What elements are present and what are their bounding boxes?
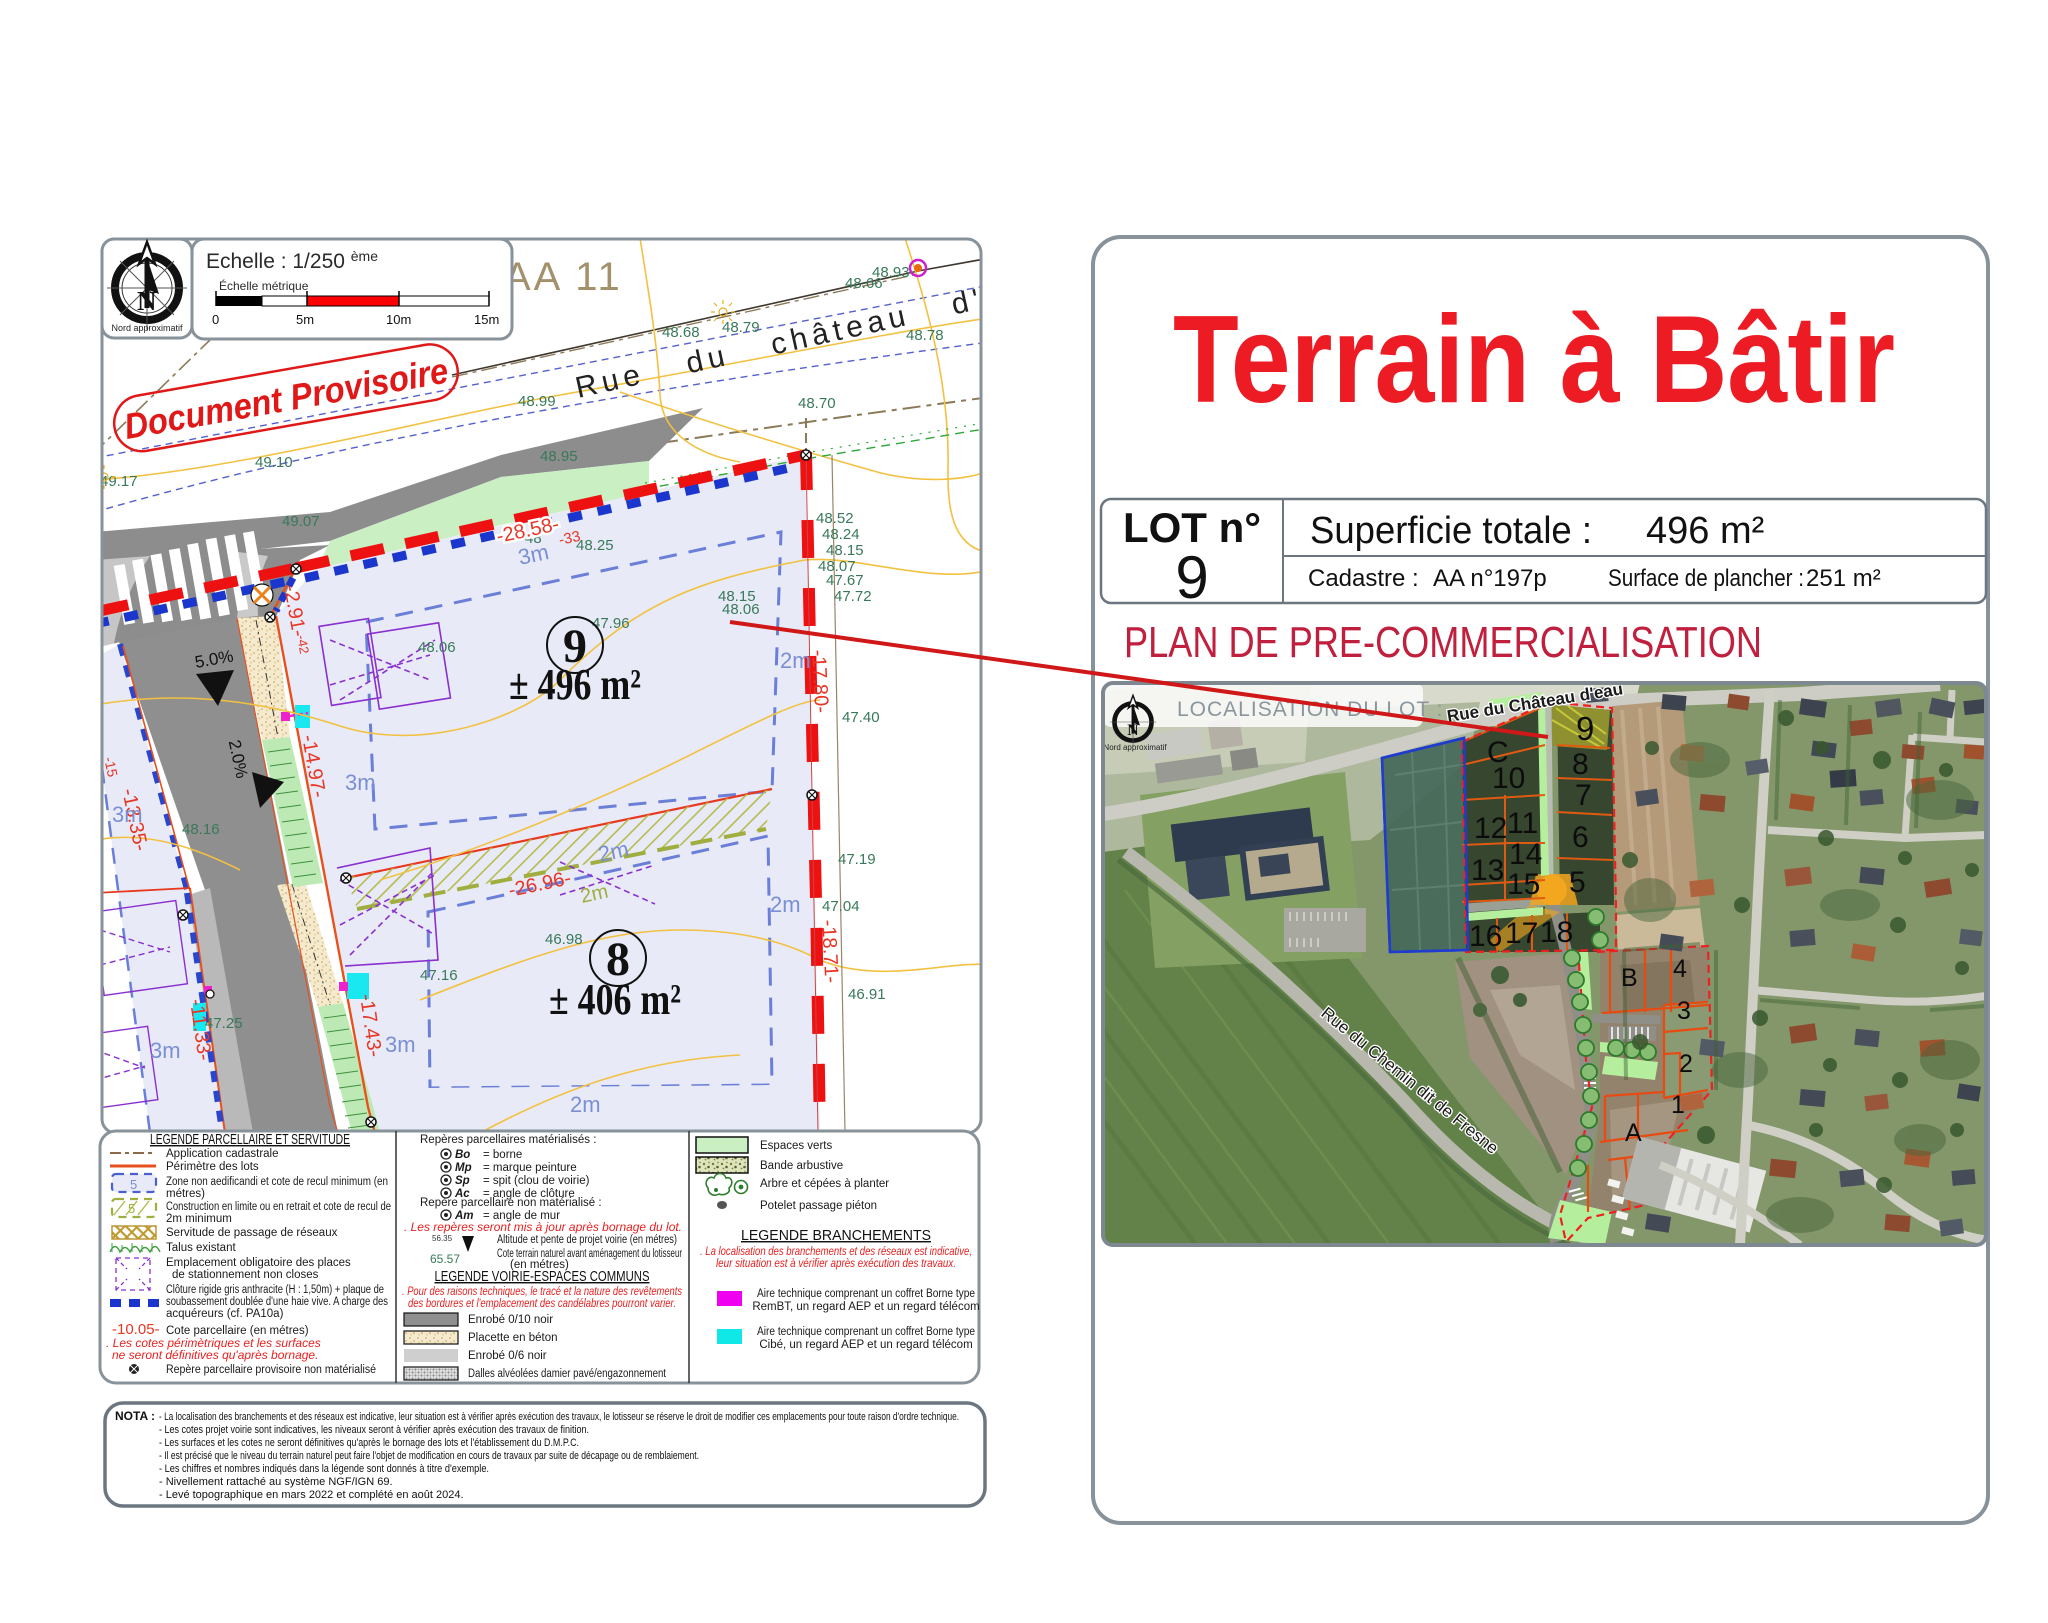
svg-text:47.72: 47.72 [834,588,872,605]
svg-text:10: 10 [1492,762,1525,795]
svg-text:2m: 2m [570,1092,601,1117]
svg-text:Repère parcellaire non matéria: Repère parcellaire non matérialisé : [420,1197,602,1209]
svg-text:Bande arbustive: Bande arbustive [760,1160,843,1172]
svg-text:Potelet passage piéton: Potelet passage piéton [760,1200,877,1212]
svg-text:46.91: 46.91 [848,986,886,1003]
svg-text:3m: 3m [385,1032,416,1057]
svg-text:- Nivellement rattaché au syst: - Nivellement rattaché au système NGF/IG… [159,1476,393,1488]
svg-text:7: 7 [1575,779,1592,812]
svg-text:Sp: Sp [455,1175,470,1187]
svg-text:3m: 3m [345,770,376,795]
svg-text:± 496 m²: ± 496 m² [509,660,641,709]
svg-text:Application cadastrale: Application cadastrale [166,1148,279,1160]
svg-text:- Il est précisé que le niveau: - Il est précisé que le niveau du terrai… [159,1450,699,1462]
svg-text:Terrain à Bâtir: Terrain à Bâtir [1173,291,1895,429]
svg-text:des bordures et l'emplacement: des bordures et l'emplacement des candél… [408,1296,676,1310]
svg-text:48.06: 48.06 [418,639,456,656]
svg-text:2m minimum: 2m minimum [166,1213,232,1225]
svg-text:14: 14 [1509,838,1542,871]
svg-text:49.17: 49.17 [100,473,138,490]
svg-text:Talus existant: Talus existant [166,1242,236,1254]
svg-text:2: 2 [1679,1050,1693,1078]
svg-text:métres): métres) [166,1188,205,1200]
svg-text:48.99: 48.99 [518,393,556,410]
svg-text:48.25: 48.25 [576,537,614,554]
svg-text:leur situation est à vérifier: leur situation est à vérifier après exéc… [716,1256,956,1270]
svg-text:Construction en limite ou en r: Construction en limite ou en retrait et … [166,1201,391,1213]
svg-text:± 406 m²: ± 406 m² [549,975,681,1024]
svg-text:-17.80-: -17.80- [807,649,832,713]
svg-text:2m: 2m [780,648,811,673]
svg-text:65.57: 65.57 [430,1252,460,1266]
svg-text:251 m²: 251 m² [1806,565,1881,592]
svg-text:Servitude de passage de réseau: Servitude de passage de réseaux [166,1227,338,1239]
svg-text:. Les repères seront mis à jou: . Les repères seront mis à jour après bo… [404,1220,682,1234]
svg-text:Repères parcellaires matériali: Repères parcellaires matérialisés : [420,1134,596,1146]
svg-text:9: 9 [1576,710,1594,747]
svg-text:48.06: 48.06 [722,601,760,618]
svg-text:PLAN DE PRE-COMMERCIALISATION: PLAN DE PRE-COMMERCIALISATION [1124,618,1762,667]
svg-text:= marque peinture: = marque peinture [483,1162,577,1174]
svg-text:8: 8 [1572,748,1589,781]
svg-text:- Levé topographique en mars 2: - Levé topographique en mars 2022 et com… [159,1489,464,1501]
svg-text:acquéreurs (cf. PA10a): acquéreurs (cf. PA10a) [166,1308,284,1320]
svg-text:49.07: 49.07 [282,513,320,530]
svg-text:496 m²: 496 m² [1646,510,1764,552]
svg-text:48.79: 48.79 [722,319,760,336]
svg-text:AA 11: AA 11 [504,255,623,299]
svg-text:15m: 15m [474,312,499,327]
svg-text:NOTA :: NOTA : [115,1409,155,1423]
svg-text:Placette en béton: Placette en béton [468,1332,558,1344]
svg-text:48.68: 48.68 [662,324,700,341]
svg-text:18: 18 [1540,916,1573,949]
svg-text:B: B [1621,964,1638,992]
svg-text:3m: 3m [150,1038,181,1063]
svg-text:N: N [137,286,157,316]
svg-text:9: 9 [1175,544,1208,611]
svg-text:Nord approximatif: Nord approximatif [111,323,183,333]
svg-text:- La localisation des branchem: - La localisation des branchements et de… [159,1411,959,1423]
svg-text:Emplacement obligatoire des pl: Emplacement obligatoire des places [166,1257,351,1269]
svg-text:17: 17 [1505,917,1538,950]
svg-text:47.16: 47.16 [420,967,458,984]
svg-text:Superficie totale :: Superficie totale : [1310,510,1592,552]
svg-text:Altitude et pente de projet vo: Altitude et pente de projet voirie (en m… [497,1234,677,1246]
svg-text:2m: 2m [770,892,801,917]
svg-text:Enrobé 0/6 noir: Enrobé 0/6 noir [468,1350,547,1362]
svg-text:5m: 5m [296,312,314,327]
svg-text:48.52: 48.52 [816,510,854,527]
svg-text:3m: 3m [112,802,143,827]
svg-text:48.95: 48.95 [540,448,578,465]
svg-text:- Les cotes projet voirie sont: - Les cotes projet voirie sont indicativ… [159,1424,589,1436]
svg-text:4: 4 [1673,955,1687,983]
svg-text:- Les surfaces et les cotes ne: - Les surfaces et les cotes ne seront dé… [159,1437,579,1449]
svg-text:0: 0 [212,312,219,327]
svg-text:LEGENDE BRANCHEMENTS: LEGENDE BRANCHEMENTS [741,1228,931,1244]
svg-text:N: N [1127,722,1139,739]
svg-text:Clôture rigide gris anthracite: Clôture rigide gris anthracite (H : 1,50… [166,1284,384,1296]
svg-text:13: 13 [1471,854,1504,887]
svg-text:10m: 10m [386,312,411,327]
svg-text:Enrobé 0/10 noir: Enrobé 0/10 noir [468,1314,553,1326]
svg-text:Cibé, un regard AEP et un rega: Cibé, un regard AEP et un regard télécom [759,1339,972,1351]
svg-text:5: 5 [130,1177,137,1192]
svg-text:RemBT, un regard AEP et un reg: RemBT, un regard AEP et un regard téléco… [752,1301,979,1313]
svg-text:48.78: 48.78 [906,327,944,344]
svg-text:= borne: = borne [483,1149,522,1161]
svg-text:11: 11 [1507,807,1538,840]
svg-text:soubassement doublée d'une hai: soubassement doublée d'une haie vive. A … [166,1296,388,1308]
svg-text:5: 5 [1569,866,1586,899]
svg-text:46.98: 46.98 [545,931,583,948]
svg-text:56.35: 56.35 [432,1234,453,1243]
svg-text:Bo: Bo [455,1149,470,1161]
svg-text:5: 5 [128,1201,135,1216]
svg-text:Échelle métrique: Échelle métrique [219,278,309,293]
svg-text:Espaces verts: Espaces verts [760,1140,832,1152]
svg-text:48.15: 48.15 [826,542,864,559]
svg-text:1: 1 [1671,1091,1685,1119]
svg-text:LEGENDE VOIRIE-ESPACES COMMUNS: LEGENDE VOIRIE-ESPACES COMMUNS [435,1269,650,1285]
svg-text:49.10: 49.10 [255,454,293,471]
svg-text:AA n°197p: AA n°197p [1433,565,1547,592]
svg-text:12: 12 [1474,812,1507,845]
svg-text:48.70: 48.70 [798,395,836,412]
svg-text:47.19: 47.19 [838,851,876,868]
svg-text:Aire technique comprenant un c: Aire technique comprenant un coffret Bor… [757,1326,975,1338]
svg-text:Surface de plancher :: Surface de plancher : [1608,565,1804,592]
svg-text:de stationnement non closes: de stationnement non closes [172,1269,319,1281]
svg-text:48.24: 48.24 [822,526,860,543]
svg-text:Périmètre des lots: Périmètre des lots [166,1161,259,1173]
svg-text:48.16: 48.16 [182,821,220,838]
svg-text:- Les chiffres et nombres indi: - Les chiffres et nombres indiqués dans … [159,1463,489,1475]
svg-text:Arbre et cépées à planter: Arbre et cépées à planter [760,1178,889,1190]
svg-text:ne seront définitives qu'après: ne seront définitives qu'après bornage. [112,1348,318,1362]
svg-text:Mp: Mp [455,1162,472,1174]
svg-text:47.67: 47.67 [826,572,864,589]
svg-text:Dalles alvéolées damier pavé/e: Dalles alvéolées damier pavé/engazonneme… [468,1368,667,1380]
svg-text:15: 15 [1507,868,1540,901]
svg-text:A: A [1625,1119,1642,1147]
svg-text:Aire technique comprenant un c: Aire technique comprenant un coffret Bor… [757,1288,975,1300]
svg-text:Cadastre :: Cadastre : [1308,565,1419,592]
svg-text:Zone non aedificandi et cote d: Zone non aedificandi et cote de recul mi… [166,1176,388,1188]
svg-text:-18.71-: -18.71- [817,919,842,983]
svg-text:3: 3 [1677,997,1691,1025]
svg-text:47.40: 47.40 [842,709,880,726]
svg-text:= spit (clou de voirie): = spit (clou de voirie) [483,1175,590,1187]
svg-text:LEGENDE PARCELLAIRE ET SERVITU: LEGENDE PARCELLAIRE ET SERVITUDE [150,1132,350,1148]
svg-text:48.93: 48.93 [872,264,910,281]
svg-text:Repère parcellaire provisoire: Repère parcellaire provisoire non matéri… [166,1364,376,1376]
svg-text:16: 16 [1469,920,1502,953]
svg-text:6: 6 [1572,821,1589,854]
svg-text:Nord approximatif: Nord approximatif [1103,743,1167,752]
svg-text:47.04: 47.04 [822,898,860,915]
